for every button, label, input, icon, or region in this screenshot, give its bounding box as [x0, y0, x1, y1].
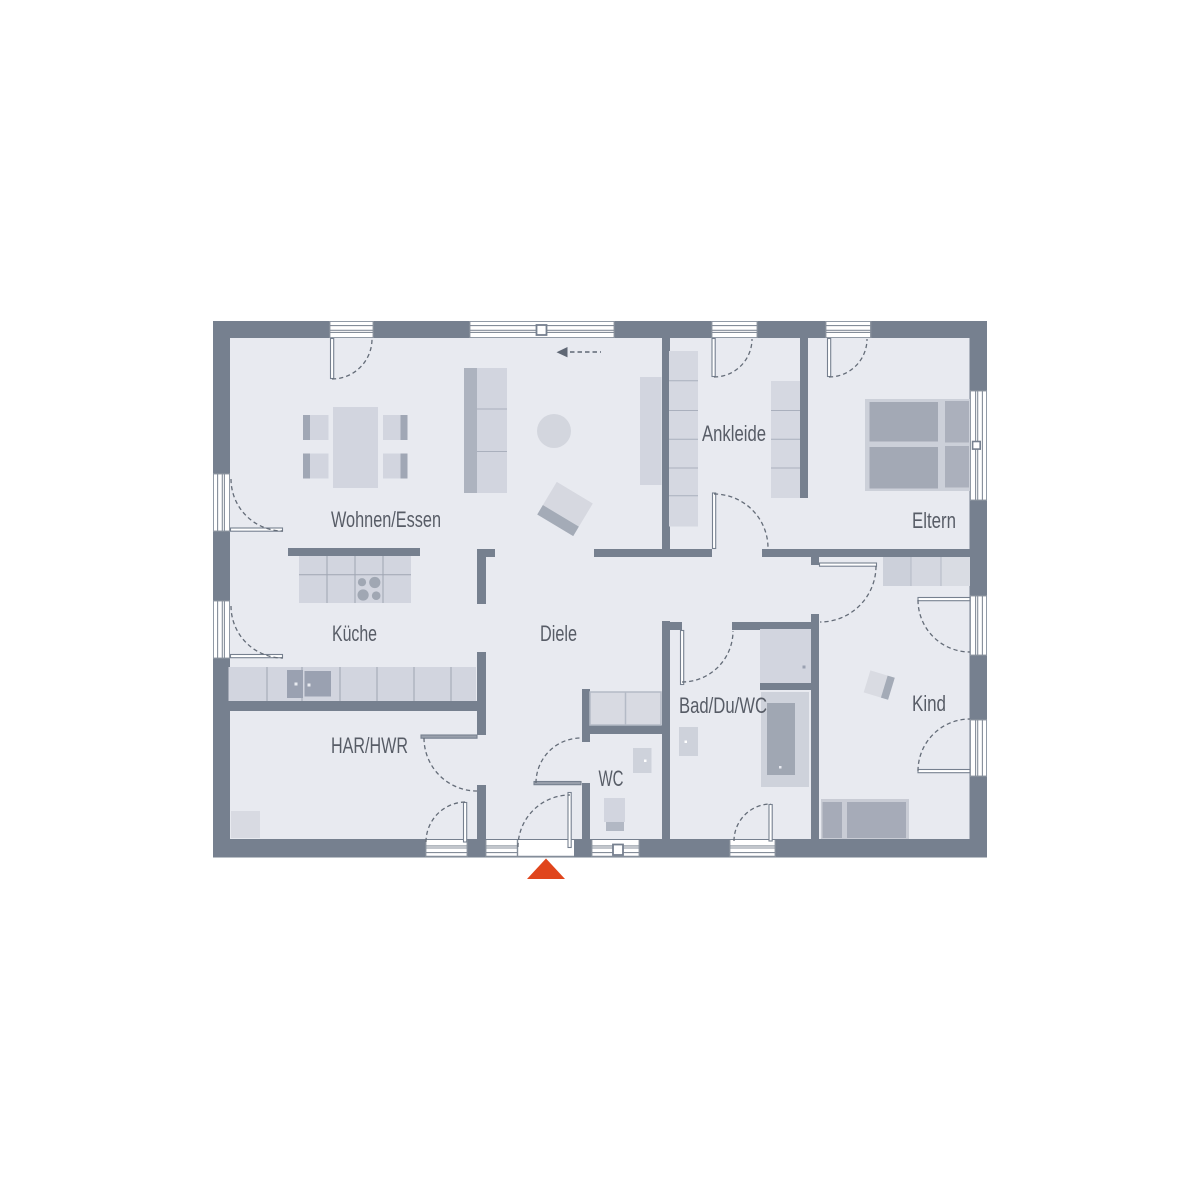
svg-text:Küche: Küche [332, 621, 377, 646]
svg-text:HAR/HWR: HAR/HWR [331, 733, 408, 758]
svg-text:Kind: Kind [912, 691, 946, 716]
svg-text:Bad/Du/WC: Bad/Du/WC [679, 693, 767, 718]
svg-text:Eltern: Eltern [912, 508, 956, 533]
svg-text:Diele: Diele [540, 621, 577, 646]
svg-text:WC: WC [599, 766, 624, 791]
svg-text:Ankleide: Ankleide [702, 421, 766, 446]
svg-text:Wohnen/Essen: Wohnen/Essen [331, 507, 441, 532]
